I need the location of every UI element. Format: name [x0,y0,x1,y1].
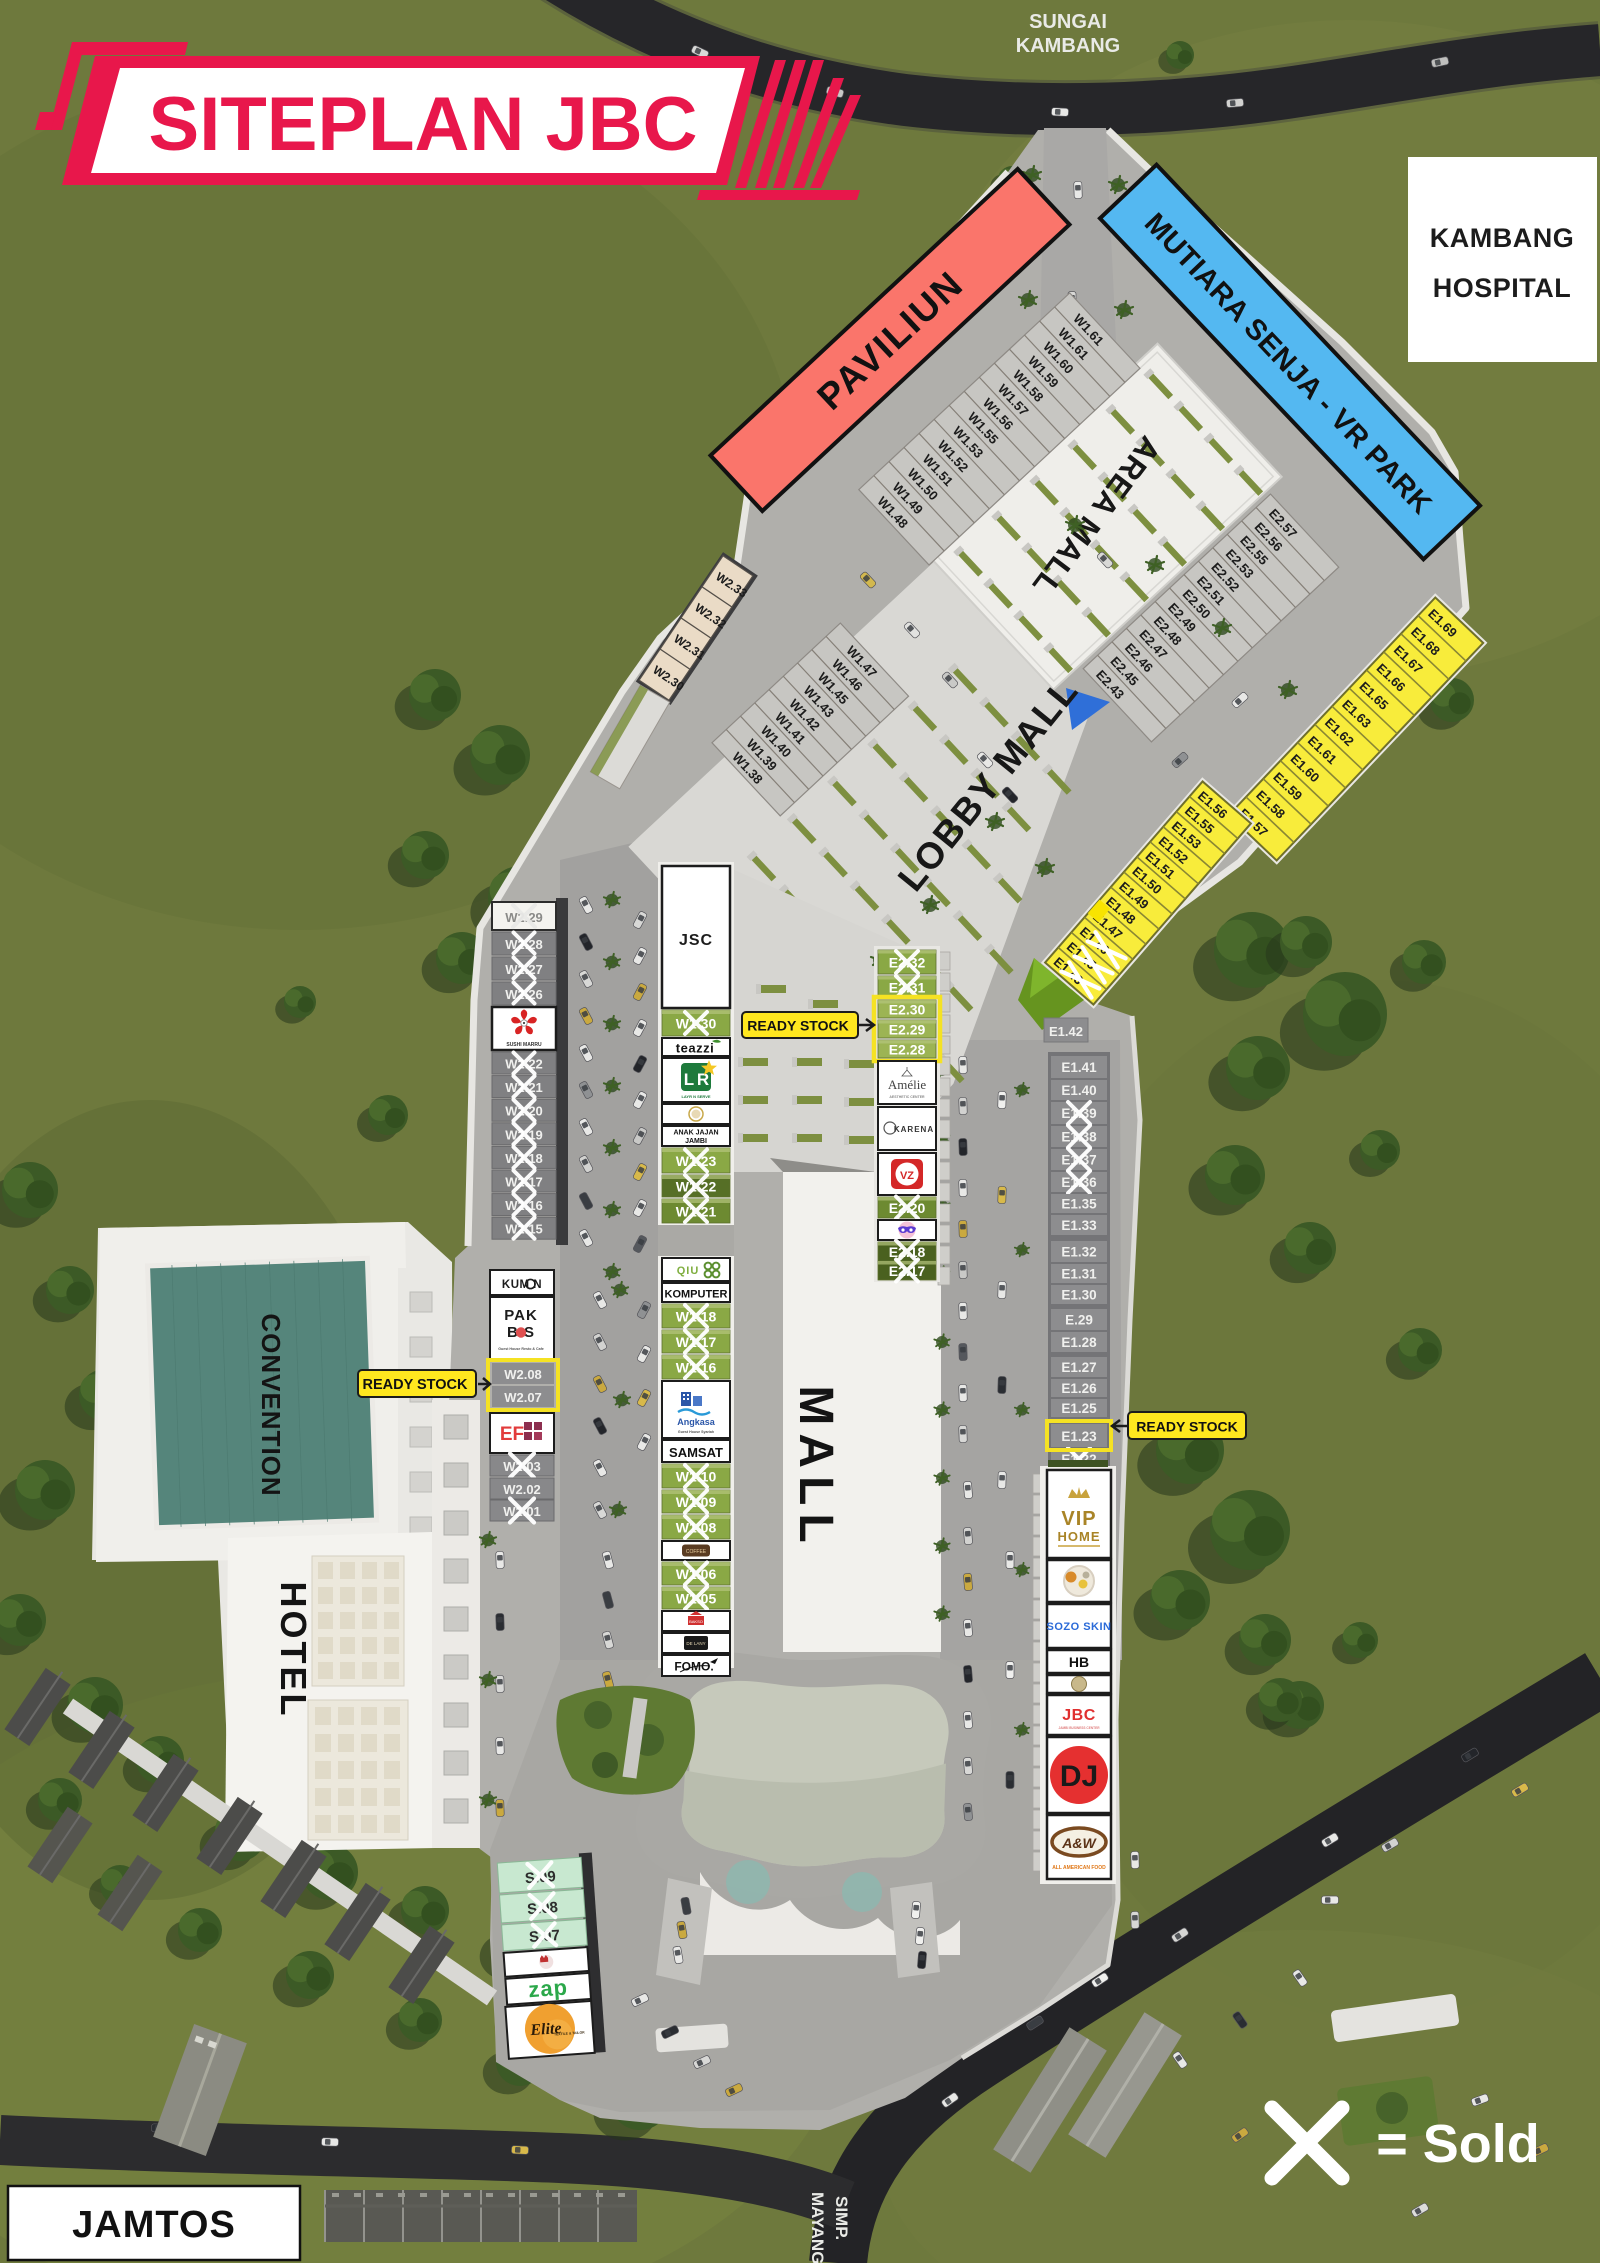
svg-text:VIP: VIP [1061,1508,1096,1530]
svg-text:READY STOCK: READY STOCK [1136,1419,1237,1435]
svg-text:SIMP.: SIMP. [832,2196,851,2240]
svg-text:E1.28: E1.28 [1061,1335,1097,1350]
svg-text:= Sold: = Sold [1376,2114,1540,2174]
svg-text:QIU: QIU [677,1265,700,1277]
svg-text:W2.07: W2.07 [504,1390,542,1405]
svg-text:E1.35: E1.35 [1061,1197,1097,1212]
svg-text:SAMSAT: SAMSAT [669,1445,723,1460]
svg-text:READY STOCK: READY STOCK [747,1018,848,1034]
svg-text:DE LANY: DE LANY [686,1641,705,1646]
svg-text:ANAK JAJAN: ANAK JAJAN [673,1130,718,1137]
svg-text:E.29: E.29 [1065,1313,1093,1328]
svg-text:E2.29: E2.29 [889,1022,926,1038]
svg-text:Amélie: Amélie [888,1077,926,1092]
svg-text:E2.28: E2.28 [889,1042,926,1058]
svg-text:SOZO SKIN: SOZO SKIN [1046,1621,1111,1633]
svg-text:DJ: DJ [1060,1760,1098,1793]
svg-text:JSC: JSC [679,932,713,949]
svg-text:JAMBI: JAMBI [685,1138,707,1145]
svg-text:KARENA: KARENA [894,1125,934,1134]
svg-text:Elite: Elite [529,2020,562,2039]
svg-text:BAKSO: BAKSO [689,1619,703,1624]
svg-text:E1.33: E1.33 [1061,1218,1097,1233]
svg-text:W2.02: W2.02 [503,1482,541,1497]
svg-text:JBC: JBC [1062,1707,1096,1724]
svg-text:KUM N: KUM N [502,1279,542,1291]
svg-text:JAMTOS: JAMTOS [72,2204,236,2246]
svg-text:HOME: HOME [1058,1529,1101,1544]
svg-text:VZ: VZ [900,1170,914,1182]
svg-text:SITEPLAN JBC: SITEPLAN JBC [149,82,698,167]
svg-text:AESTHETIC CENTER: AESTHETIC CENTER [889,1095,925,1099]
svg-text:KOMPUTER: KOMPUTER [665,1289,728,1301]
svg-text:E1.32: E1.32 [1061,1245,1096,1260]
svg-text:EF: EF [500,1424,524,1445]
svg-text:E1.41: E1.41 [1061,1060,1097,1075]
svg-text:MAYANG: MAYANG [808,2192,827,2263]
svg-text:KAMBANG: KAMBANG [1430,223,1575,253]
svg-text:READY STOCK: READY STOCK [362,1377,468,1393]
svg-text:E2.30: E2.30 [889,1002,926,1018]
svg-text:HOSPITAL: HOSPITAL [1433,273,1572,303]
svg-text:E1.31: E1.31 [1061,1267,1097,1282]
svg-text:E1.23: E1.23 [1061,1429,1097,1444]
svg-text:L: L [684,1070,694,1089]
svg-text:ALL AMERICAN FOOD: ALL AMERICAN FOOD [1052,1865,1106,1871]
svg-text:E1.30: E1.30 [1061,1288,1096,1303]
svg-text:CONVENTION: CONVENTION [256,1313,286,1496]
svg-text:E1.27: E1.27 [1061,1360,1096,1375]
svg-text:LAYR N SERVE: LAYR N SERVE [681,1094,710,1099]
svg-text:COFFEE: COFFEE [686,1549,707,1555]
svg-text:Guest House Resto & Cafe: Guest House Resto & Cafe [498,1347,544,1351]
svg-text:HOTEL: HOTEL [273,1582,314,1719]
svg-text:JAMBI BUSINESS CENTER: JAMBI BUSINESS CENTER [1058,1726,1100,1730]
svg-text:E1.40: E1.40 [1061,1083,1096,1098]
svg-text:zap: zap [527,1975,568,2003]
svg-text:teazzi: teazzi [676,1041,714,1056]
svg-text:Angkasa: Angkasa [677,1417,716,1427]
svg-text:HB: HB [1069,1654,1089,1670]
svg-text:A&W: A&W [1061,1835,1097,1851]
svg-text:PAK: PAK [504,1307,538,1324]
svg-text:E1.42: E1.42 [1049,1024,1083,1039]
svg-text:MALL: MALL [789,1385,842,1550]
svg-text:E1.25: E1.25 [1061,1401,1097,1416]
svg-text:Guest House Syariah: Guest House Syariah [678,1430,714,1434]
svg-text:KAMBANG: KAMBANG [1016,35,1120,57]
svg-text:W2.08: W2.08 [504,1367,542,1382]
svg-text:E1.26: E1.26 [1061,1381,1097,1396]
svg-text:SUNGAI: SUNGAI [1029,11,1107,33]
svg-text:SUSHI MARRU: SUSHI MARRU [506,1042,542,1048]
